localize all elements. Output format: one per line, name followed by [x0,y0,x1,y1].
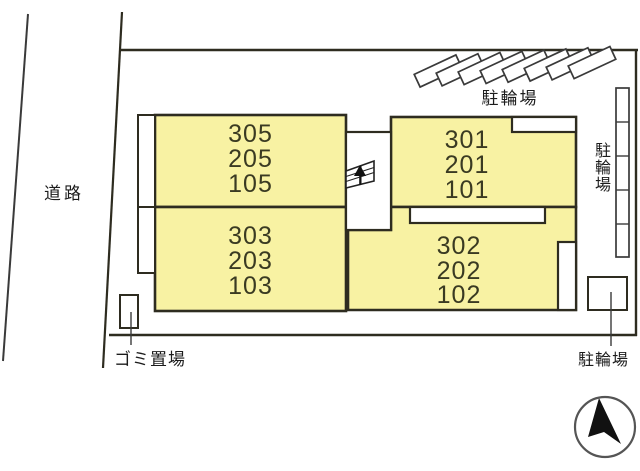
unit-stack-block-c: 301 201 101 [391,128,543,203]
unit-number: 102 [381,283,537,308]
unit-number: 303 [155,224,346,249]
unit-stack-block-d: 302 202 102 [381,234,537,308]
unit-number: 202 [381,259,537,284]
balcony-strip-upper [138,115,155,207]
site-plan: 道路 駐輪場 駐輪場 駐輪場 ゴミ置場 305 205 105 303 203 … [0,0,640,471]
garbage-box [120,295,138,328]
unit-number: 103 [155,274,346,299]
bicycle-parking-label-right: 駐輪場 [588,142,612,206]
unit-number: 201 [391,153,543,178]
unit-number: 205 [155,147,346,172]
bicycle-parking-label-bottom: 駐輪場 [578,346,640,370]
bicycle-rack-right [616,88,629,257]
bicycle-slot [568,47,616,79]
north-arrow-icon [575,397,635,457]
garbage-area-label: ゴミ置場 [114,345,194,370]
balcony-strip-lower [138,207,155,273]
bicycle-parking-box [588,277,627,310]
bicycle-parking-label-top: 駐輪場 [468,84,552,109]
bicycle-slot-row [414,47,616,88]
road-label: 道路 [38,179,90,204]
unit-number: 305 [155,122,346,147]
entrance-notch-bottom-right [558,242,576,310]
unit-number: 105 [155,172,346,197]
unit-number: 203 [155,249,346,274]
unit-stack-block-b: 303 203 103 [155,224,346,299]
unit-stack-block-a: 305 205 105 [155,122,346,197]
unit-number: 101 [391,178,543,203]
unit-number: 301 [391,128,543,153]
road-edge-line [3,14,28,361]
unit-number: 302 [381,234,537,259]
entrance-notch-middle [410,207,545,223]
